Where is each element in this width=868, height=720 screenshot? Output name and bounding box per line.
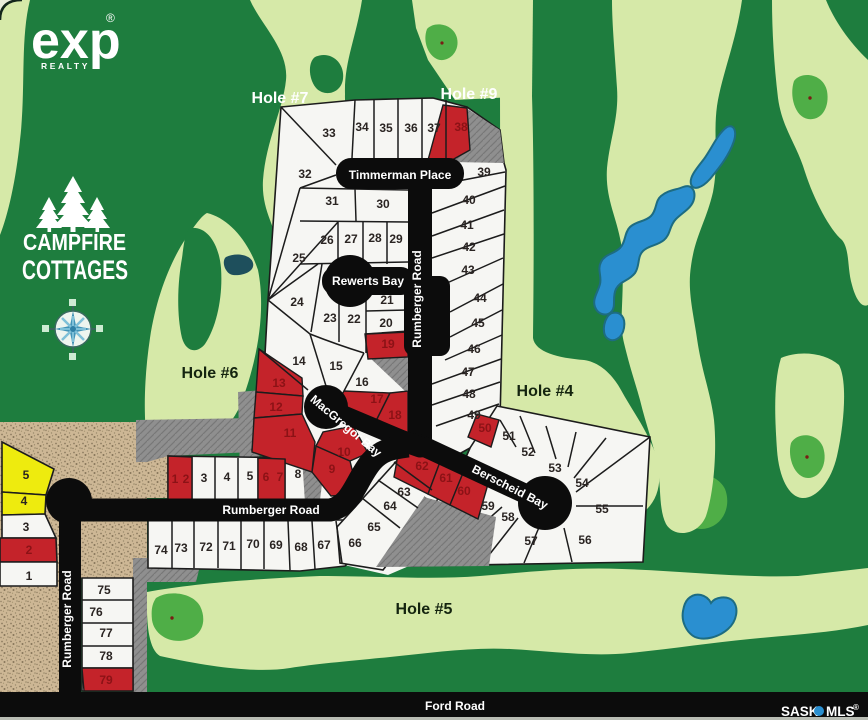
svg-text:11: 11 (284, 426, 297, 440)
svg-text:41: 41 (460, 218, 474, 232)
svg-text:®: ® (853, 703, 859, 712)
svg-text:62: 62 (415, 459, 429, 473)
svg-text:76: 76 (89, 605, 103, 619)
svg-text:63: 63 (397, 485, 411, 499)
svg-text:33: 33 (322, 126, 336, 140)
svg-text:16: 16 (355, 375, 369, 389)
svg-text:28: 28 (368, 231, 382, 245)
svg-text:Timmerman Place: Timmerman Place (349, 168, 452, 182)
svg-text:5: 5 (247, 469, 254, 483)
svg-text:60: 60 (457, 484, 471, 498)
svg-text:40: 40 (462, 193, 476, 207)
svg-text:67: 67 (317, 538, 331, 552)
svg-text:64: 64 (383, 499, 397, 513)
svg-text:47: 47 (461, 365, 475, 379)
svg-text:48: 48 (462, 387, 476, 401)
svg-text:19: 19 (381, 337, 395, 351)
svg-text:Rumberger Road: Rumberger Road (222, 503, 319, 517)
svg-text:20: 20 (379, 316, 393, 330)
svg-text:55: 55 (595, 502, 609, 516)
svg-text:8: 8 (295, 467, 302, 481)
svg-text:56: 56 (578, 533, 592, 547)
svg-text:17: 17 (370, 392, 384, 406)
svg-text:3: 3 (201, 471, 208, 485)
svg-text:73: 73 (174, 541, 188, 555)
svg-text:34: 34 (355, 120, 369, 134)
svg-text:45: 45 (471, 316, 485, 330)
svg-text:Hole #9: Hole #9 (441, 86, 498, 103)
svg-text:Hole #6: Hole #6 (182, 365, 239, 382)
svg-text:59: 59 (481, 499, 495, 513)
svg-text:29: 29 (389, 232, 403, 246)
svg-text:66: 66 (348, 536, 362, 550)
svg-text:49: 49 (467, 408, 481, 422)
svg-text:MLS: MLS (826, 704, 855, 719)
svg-text:Hole #4: Hole #4 (517, 383, 574, 400)
svg-text:4: 4 (21, 494, 28, 508)
svg-text:Ford Road: Ford Road (425, 699, 485, 713)
svg-text:70: 70 (246, 537, 260, 551)
svg-text:71: 71 (222, 539, 236, 553)
svg-text:23: 23 (323, 311, 337, 325)
svg-text:1: 1 (26, 569, 33, 583)
svg-text:68: 68 (294, 540, 308, 554)
svg-text:COTTAGES: COTTAGES (22, 255, 128, 285)
svg-text:®: ® (106, 11, 115, 25)
svg-text:27: 27 (344, 232, 358, 246)
svg-text:9: 9 (329, 462, 336, 476)
svg-text:4: 4 (224, 470, 231, 484)
svg-text:10: 10 (337, 445, 351, 459)
svg-text:42: 42 (462, 240, 476, 254)
svg-text:3: 3 (23, 520, 30, 534)
svg-text:22: 22 (347, 312, 361, 326)
svg-text:51: 51 (502, 429, 516, 443)
svg-text:24: 24 (290, 295, 304, 309)
svg-text:30: 30 (376, 197, 390, 211)
svg-text:52: 52 (521, 445, 535, 459)
svg-text:43: 43 (461, 263, 475, 277)
svg-text:77: 77 (99, 626, 113, 640)
svg-text:37: 37 (427, 121, 441, 135)
svg-text:74: 74 (154, 543, 168, 557)
svg-text:21: 21 (380, 293, 394, 307)
svg-text:32: 32 (298, 167, 312, 181)
svg-text:12: 12 (269, 400, 283, 414)
svg-text:15: 15 (329, 359, 343, 373)
svg-text:Hole #7: Hole #7 (252, 90, 309, 107)
svg-text:13: 13 (272, 376, 286, 390)
svg-text:SASK: SASK (781, 704, 819, 719)
svg-text:65: 65 (367, 520, 381, 534)
svg-text:Rumberger Road: Rumberger Road (60, 570, 74, 667)
svg-text:26: 26 (320, 233, 334, 247)
svg-text:7: 7 (277, 470, 284, 484)
svg-text:72: 72 (199, 540, 213, 554)
svg-text:44: 44 (473, 291, 487, 305)
svg-text:69: 69 (269, 538, 283, 552)
svg-text:Rewerts Bay: Rewerts Bay (332, 274, 404, 288)
svg-text:2: 2 (183, 472, 190, 486)
svg-text:53: 53 (548, 461, 562, 475)
svg-text:54: 54 (575, 476, 589, 490)
svg-text:1: 1 (172, 472, 179, 486)
svg-text:61: 61 (439, 471, 453, 485)
svg-text:CAMPFIRE: CAMPFIRE (23, 229, 126, 255)
svg-text:25: 25 (292, 251, 306, 265)
svg-text:57: 57 (524, 534, 538, 548)
svg-text:Rumberger Road: Rumberger Road (410, 250, 424, 347)
svg-text:Hole #5: Hole #5 (396, 601, 453, 618)
svg-text:18: 18 (388, 408, 402, 422)
svg-text:79: 79 (99, 673, 113, 687)
svg-text:35: 35 (379, 121, 393, 135)
svg-text:31: 31 (325, 194, 339, 208)
svg-text:46: 46 (467, 342, 481, 356)
svg-text:58: 58 (501, 510, 515, 524)
svg-text:50: 50 (478, 421, 492, 435)
svg-text:2: 2 (26, 543, 33, 557)
svg-text:6: 6 (263, 470, 270, 484)
svg-text:75: 75 (97, 583, 111, 597)
svg-text:5: 5 (23, 468, 30, 482)
svg-text:14: 14 (292, 354, 306, 368)
svg-text:78: 78 (99, 649, 113, 663)
svg-text:36: 36 (404, 121, 418, 135)
svg-text:REALTY: REALTY (41, 61, 90, 71)
svg-text:38: 38 (454, 120, 468, 134)
svg-text:39: 39 (477, 165, 491, 179)
